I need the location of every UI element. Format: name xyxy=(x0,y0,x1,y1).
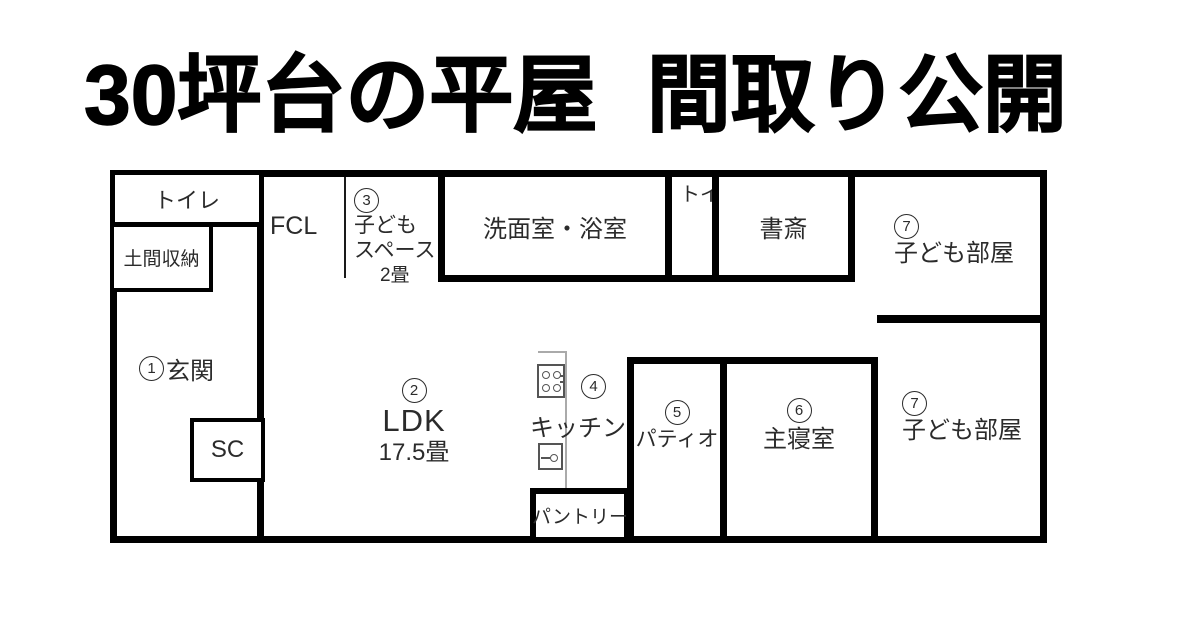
kids-room-lower-name: 子ども部屋 xyxy=(902,416,1022,446)
master-bedroom-label: 主寝室 xyxy=(763,423,835,456)
study-label: 書斎 xyxy=(760,209,808,244)
kids-space-number: 3 xyxy=(354,188,379,213)
patio-room: 5 パティオ xyxy=(627,357,727,543)
doma-storage-label: 土間収納 xyxy=(123,244,199,271)
washroom-bathroom-label: 洗面室・浴室 xyxy=(483,209,627,244)
toilet-room-label: トイレ xyxy=(154,183,220,215)
kitchen-label: キッチン xyxy=(530,408,626,443)
toilet2-column-label: トイレ xyxy=(680,181,706,210)
kids-space-size: 2畳 xyxy=(354,263,435,288)
ldk-number: 2 xyxy=(402,378,427,403)
kids-room-divider-wall xyxy=(877,315,1040,323)
floor-plan-page: 30坪台の平屋 間取り公開 トイレ 土間収納 1 玄関 SC FCL 3 子ど xyxy=(0,0,1200,630)
master-bedroom-label-group: 6 主寝室 xyxy=(763,398,835,456)
sink-icon xyxy=(538,443,563,470)
floor-plan: トイレ 土間収納 1 玄関 SC FCL 3 子ども スペース 2畳 洗面室・浴… xyxy=(0,0,1200,630)
kids-space-line2: スペース xyxy=(354,238,435,263)
kids-room-lower-label-group: 7 子ども部屋 xyxy=(902,391,1022,446)
stove-icon xyxy=(537,364,565,398)
patio-label-group: 5 パティオ xyxy=(636,400,719,455)
genkan-label: 1 玄関 xyxy=(139,351,214,386)
sc-closet: SC xyxy=(190,418,265,482)
entrance-wall xyxy=(257,177,264,536)
ldk-size: 17.5畳 xyxy=(379,439,450,467)
ldk-label-group: 2 LDK 17.5畳 xyxy=(353,378,475,467)
master-bedroom-room: 6 主寝室 xyxy=(720,357,878,543)
master-bedroom-number: 6 xyxy=(787,398,812,423)
kitchen-number: 4 xyxy=(581,374,606,399)
kids-room-upper-number: 7 xyxy=(894,214,919,239)
genkan-number: 1 xyxy=(139,356,164,381)
patio-number: 5 xyxy=(665,400,690,425)
patio-label: パティオ xyxy=(636,425,719,455)
ldk-name: LDK xyxy=(382,403,445,439)
pantry-label: パントリー xyxy=(532,502,628,529)
kids-space-line1: 子ども xyxy=(354,213,435,238)
kids-room-upper-label-group: 7 子ども部屋 xyxy=(894,214,1014,268)
toilet-room: トイレ xyxy=(110,170,264,227)
genkan-name: 玄関 xyxy=(166,351,214,386)
washroom-bathroom-room: 洗面室・浴室 xyxy=(438,170,672,282)
kids-room-lower-number: 7 xyxy=(902,391,927,416)
kids-room-upper-name: 子ども部屋 xyxy=(894,239,1014,268)
kids-space-label-group: 3 子ども スペース 2畳 xyxy=(354,188,435,288)
kids-space-divider-wall xyxy=(344,177,346,278)
pantry-room: パントリー xyxy=(530,488,630,543)
doma-storage-room: 土間収納 xyxy=(110,223,213,292)
sc-label: SC xyxy=(211,436,244,464)
study-room: 書斎 xyxy=(712,170,855,282)
kitchen-counter-line-h xyxy=(538,351,567,353)
fcl-label: FCL xyxy=(270,212,317,241)
